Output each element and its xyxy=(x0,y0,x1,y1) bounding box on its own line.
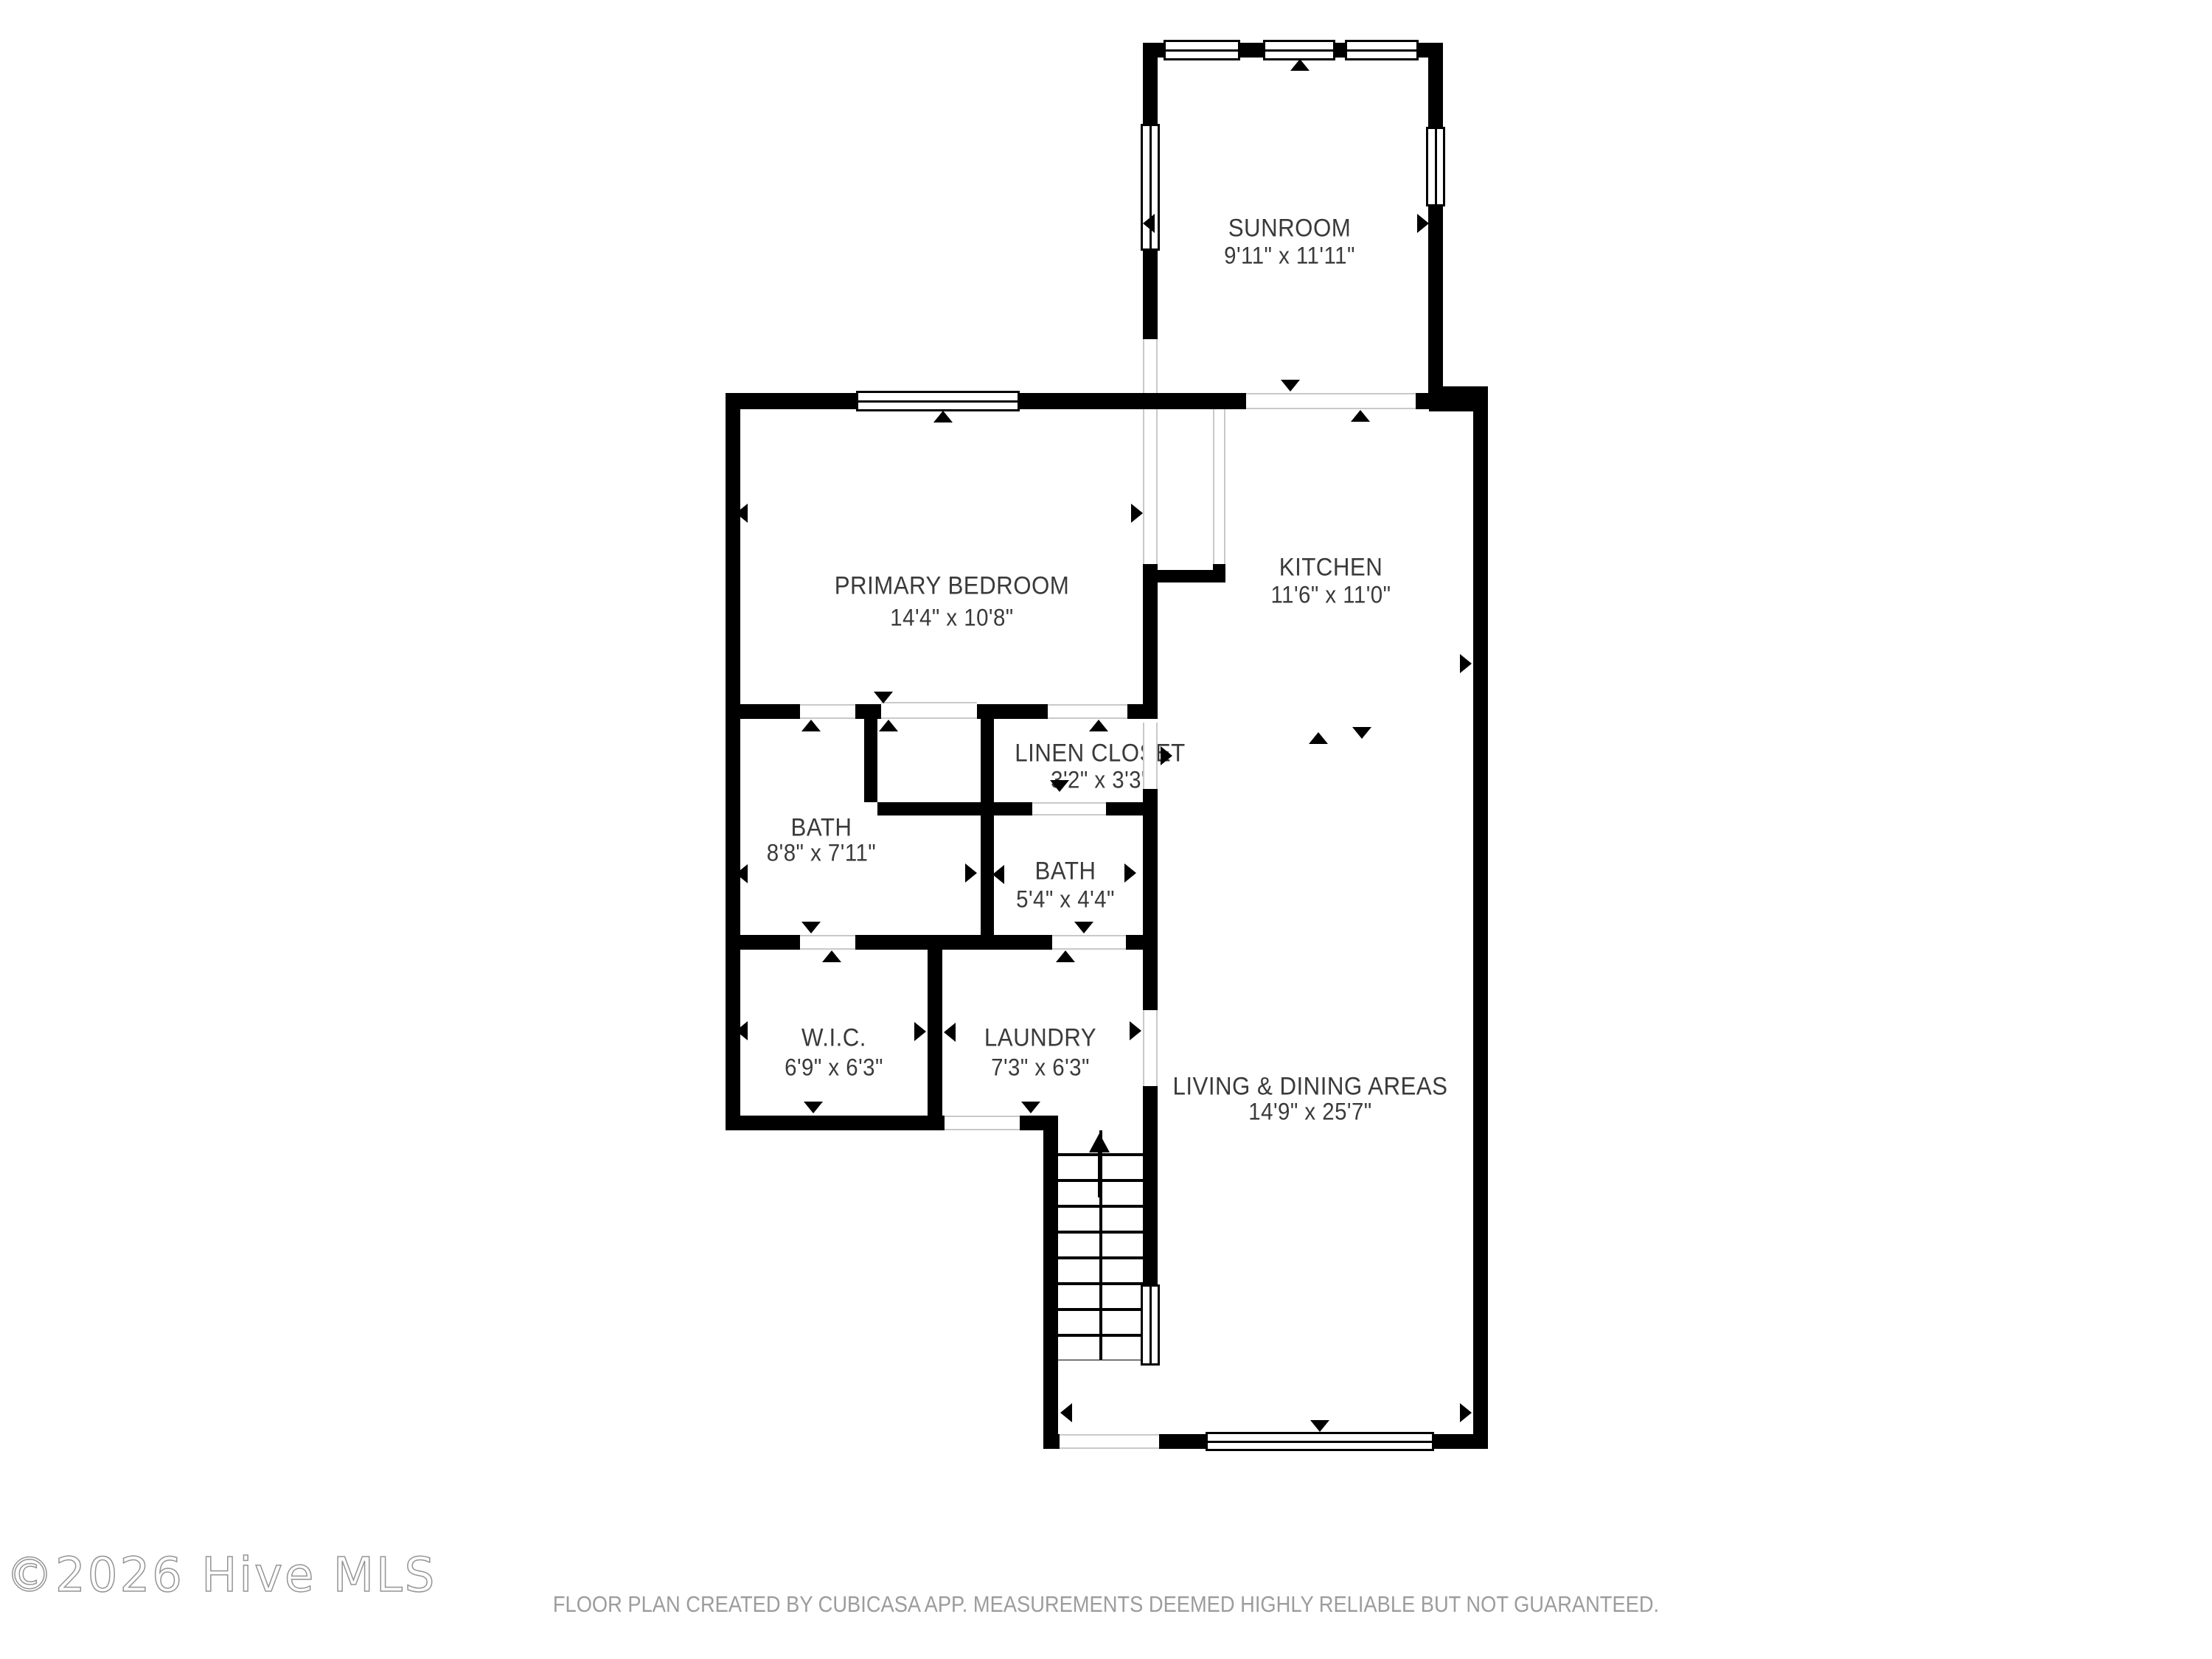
wall-segment xyxy=(1143,564,1158,704)
wall-segment xyxy=(1428,206,1443,393)
wall-segment xyxy=(1143,1086,1158,1284)
door-swing-arrow-right-icon xyxy=(1124,863,1136,883)
room-label-bath-main-dims: 8'8" x 7'11" xyxy=(767,840,876,867)
door-swing-arrow-up-icon xyxy=(1089,720,1108,731)
door-swing-arrow-left-icon xyxy=(992,865,1004,884)
door-swing-arrow-down-icon xyxy=(1074,922,1093,933)
room-label-kitchen-dims: 11'6" x 11'0" xyxy=(1270,582,1391,609)
room-label-bath-main-name: BATH xyxy=(791,814,852,843)
window xyxy=(1263,40,1335,60)
wall-segment xyxy=(1143,789,1158,1010)
door-swing-arrow-down-icon xyxy=(874,692,893,703)
door-swing-arrow-left-icon xyxy=(1060,1403,1072,1422)
door-swing-arrow-down-icon xyxy=(1050,780,1069,792)
door-swing-arrow-right-icon xyxy=(1460,1403,1472,1422)
door-opening xyxy=(1060,1434,1159,1449)
window xyxy=(1206,1432,1434,1451)
window xyxy=(1345,40,1419,60)
room-label-sunroom-name: SUNROOM xyxy=(1228,215,1352,243)
door-opening xyxy=(1052,935,1126,950)
door-swing-arrow-right-icon xyxy=(965,863,977,883)
door-opening xyxy=(1032,802,1106,815)
door-swing-arrow-down-icon xyxy=(804,1102,823,1113)
door-swing-arrow-down-icon xyxy=(1021,1102,1040,1113)
door-opening xyxy=(1143,1010,1158,1086)
window xyxy=(1426,127,1445,206)
room-label-living-dining-name: LIVING & DINING AREAS xyxy=(1173,1073,1448,1102)
door-opening xyxy=(800,704,855,719)
door-opening xyxy=(1143,339,1158,393)
stairs-up-arrow-head xyxy=(1089,1133,1110,1152)
door-swing-arrow-right-icon xyxy=(914,1022,926,1041)
room-label-primary-bedroom-dims: 14'4" x 10'8" xyxy=(890,605,1013,632)
room-label-wic-name: W.I.C. xyxy=(801,1024,866,1053)
door-swing-arrow-right-icon xyxy=(1130,1021,1141,1040)
wall-segment xyxy=(877,802,1158,815)
door-swing-arrow-down-icon xyxy=(801,922,821,933)
door-swing-arrow-left-icon xyxy=(944,1023,956,1042)
floor-plan-page: SUNROOM 9'11" x 11'11" PRIMARY BEDROOM 1… xyxy=(0,0,2212,1659)
door-swing-arrow-down-icon xyxy=(1310,1420,1329,1432)
door-swing-arrow-right-icon xyxy=(1161,746,1172,765)
wall-segment xyxy=(1473,386,1488,1449)
door-swing-arrow-up-icon xyxy=(1056,950,1075,962)
door-swing-arrow-up-icon xyxy=(1290,59,1310,71)
door-swing-arrow-left-icon xyxy=(1143,214,1155,233)
room-label-primary-bedroom-name: PRIMARY BEDROOM xyxy=(835,572,1070,601)
room-label-sunroom-dims: 9'11" x 11'11" xyxy=(1224,243,1355,270)
room-label-living-dining-dims: 14'9" x 25'7" xyxy=(1248,1099,1371,1126)
stairs-up-arrow xyxy=(1098,1152,1102,1197)
room-label-kitchen-name: KITCHEN xyxy=(1279,554,1383,582)
window xyxy=(1164,40,1240,60)
door-opening xyxy=(1246,393,1416,409)
door-swing-arrow-left-icon xyxy=(736,1021,748,1040)
room-label-bath-half-dims: 5'4" x 4'4" xyxy=(1016,886,1115,914)
wall-segment xyxy=(1213,564,1225,582)
window xyxy=(856,391,1020,411)
room-label-wic-dims: 6'9" x 6'3" xyxy=(785,1054,883,1082)
door-swing-arrow-up-icon xyxy=(879,720,898,731)
door-opening xyxy=(1213,409,1225,564)
door-swing-arrow-down-icon xyxy=(1352,727,1371,739)
door-opening xyxy=(1143,409,1158,564)
wall-segment xyxy=(928,950,942,1116)
door-swing-arrow-right-icon xyxy=(1460,654,1472,673)
door-swing-arrow-up-icon xyxy=(801,720,821,731)
room-label-bath-half-name: BATH xyxy=(1035,858,1096,886)
door-opening xyxy=(1143,723,1158,789)
door-swing-arrow-up-icon xyxy=(1309,732,1328,744)
door-swing-arrow-up-icon xyxy=(1351,410,1370,422)
door-swing-arrow-left-icon xyxy=(736,864,748,883)
door-opening xyxy=(881,702,977,719)
wall-segment xyxy=(1143,251,1158,339)
door-swing-arrow-up-icon xyxy=(822,950,841,962)
wall-segment xyxy=(1143,58,1158,124)
wall-segment xyxy=(1043,1116,1058,1449)
door-swing-arrow-right-icon xyxy=(1417,214,1429,233)
footer-disclaimer: FLOOR PLAN CREATED BY CUBICASA APP. MEAS… xyxy=(133,1591,2079,1618)
wall-segment xyxy=(981,719,994,935)
door-opening xyxy=(800,935,855,950)
door-opening xyxy=(1048,704,1127,719)
door-swing-arrow-left-icon xyxy=(736,504,748,523)
door-swing-arrow-up-icon xyxy=(933,411,953,422)
wall-segment xyxy=(1428,58,1443,127)
window xyxy=(1141,1284,1160,1366)
wall-segment xyxy=(864,719,877,802)
room-label-laundry-name: LAUNDRY xyxy=(984,1024,1096,1053)
door-swing-arrow-down-icon xyxy=(1281,380,1300,392)
door-opening xyxy=(945,1116,1020,1130)
room-label-laundry-dims: 7'3" x 6'3" xyxy=(991,1054,1090,1082)
door-swing-arrow-right-icon xyxy=(1131,504,1143,523)
